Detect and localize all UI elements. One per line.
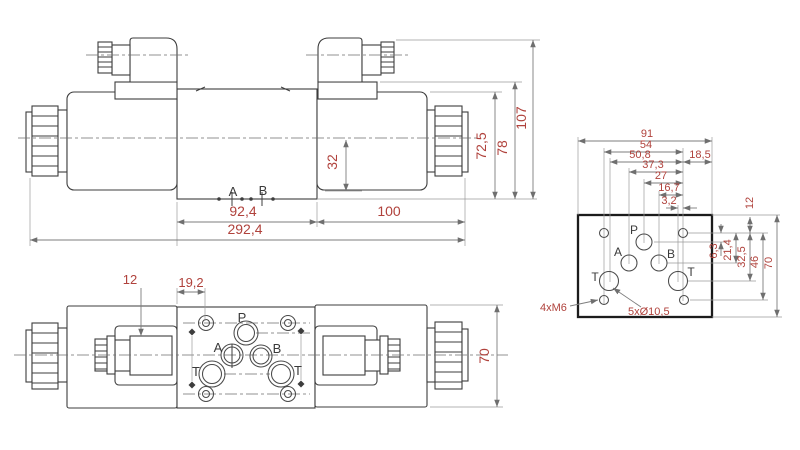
plate-port-t1-label: T bbox=[591, 270, 599, 284]
left-din-connector bbox=[86, 38, 190, 82]
dim-body-length: 92,4 bbox=[229, 203, 256, 219]
plate-dim-21-4: 21,4 bbox=[722, 239, 734, 260]
top-right-coil bbox=[315, 305, 427, 407]
dim-coil-height: 72,5 bbox=[473, 132, 489, 159]
plate-dim-18-5: 18,5 bbox=[689, 149, 710, 161]
port-b-label-side: B bbox=[259, 183, 268, 198]
plate-dim-70: 70 bbox=[763, 257, 775, 269]
plate-dim-6-3: 6,3 bbox=[708, 243, 720, 258]
port-a-label-side: A bbox=[229, 184, 238, 199]
plate-port-a-label: A bbox=[614, 245, 622, 259]
plate-port-p-label: P bbox=[630, 223, 638, 237]
mounting-plate-view: P A B T T 91 54 50,8 18,5 37,3 27 16,7 3… bbox=[540, 128, 782, 318]
dim-hole-offset: 19,2 bbox=[178, 275, 203, 290]
top-left-knurled-knob bbox=[26, 323, 67, 389]
port-b-label: B bbox=[273, 341, 282, 356]
plate-dim-3-2: 3,2 bbox=[661, 195, 676, 207]
dim-connector-offset: 12 bbox=[123, 272, 137, 287]
dim-body-height: 78 bbox=[494, 140, 510, 156]
plate-port-b-label: B bbox=[667, 247, 675, 261]
top-view: P A B T T 12 19,2 70 bbox=[14, 272, 508, 408]
left-solenoid-coil bbox=[67, 82, 177, 190]
right-din-connector bbox=[306, 38, 410, 82]
dim-coil-length: 100 bbox=[377, 203, 401, 219]
port-t1-label: T bbox=[192, 364, 200, 379]
plate-dim-12: 12 bbox=[744, 197, 756, 209]
plate-dim-32-5: 32,5 bbox=[736, 246, 748, 267]
port-t2-label: T bbox=[294, 363, 302, 378]
note-mounting-holes: 4xM6 bbox=[540, 302, 567, 314]
top-left-coil bbox=[67, 306, 177, 408]
dim-valve-width: 70 bbox=[476, 348, 492, 364]
dim-total-height: 107 bbox=[513, 106, 529, 130]
plate-dim-46: 46 bbox=[749, 256, 761, 268]
dim-total-length: 292,4 bbox=[227, 221, 262, 237]
valve-dimension-drawing: A B 92,4 100 292,4 32 bbox=[0, 0, 800, 450]
top-right-knurled-knob bbox=[427, 322, 468, 389]
plate-dim-27: 27 bbox=[655, 170, 667, 182]
plate-horizontal-dimensions: 91 54 50,8 18,5 37,3 27 16,7 3,2 bbox=[578, 128, 712, 208]
left-knurled-knob bbox=[26, 106, 67, 176]
note-port-holes: 5xØ10,5 bbox=[628, 306, 670, 318]
technical-drawing-page: A B 92,4 100 292,4 32 bbox=[0, 0, 800, 450]
port-p-label: P bbox=[238, 310, 247, 325]
port-a-label: A bbox=[214, 340, 223, 355]
dim-center-to-bottom: 32 bbox=[324, 154, 340, 170]
valve-body-side bbox=[177, 87, 317, 199]
right-knurled-knob bbox=[427, 106, 468, 176]
plate-port-t2-label: T bbox=[687, 265, 695, 279]
side-view: A B 92,4 100 292,4 32 bbox=[18, 38, 540, 246]
right-solenoid-coil bbox=[317, 82, 427, 190]
plate-dim-16-7: 16,7 bbox=[658, 182, 679, 194]
